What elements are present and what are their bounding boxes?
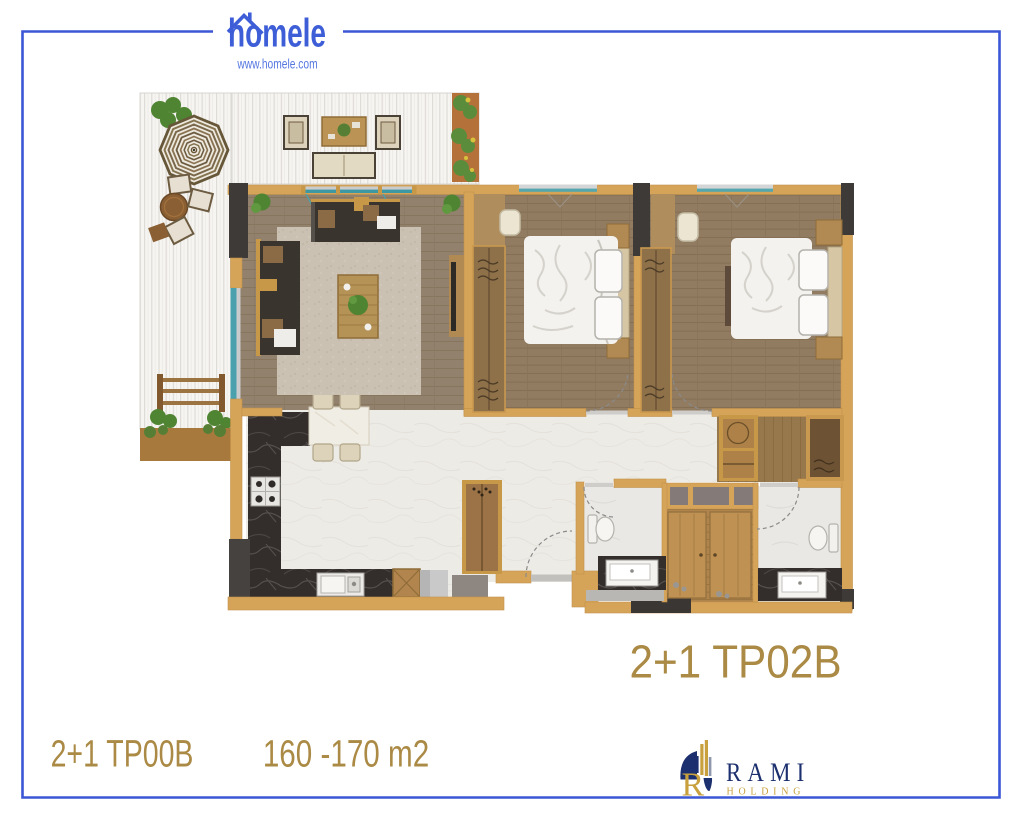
svg-text:homele: homele	[228, 12, 326, 56]
svg-text:2+1 TP00B: 2+1 TP00B	[51, 734, 194, 776]
svg-text:RAMI: RAMI	[726, 759, 810, 788]
svg-text:HOLDING: HOLDING	[727, 786, 806, 797]
svg-text:www.homele.com: www.homele.com	[237, 56, 318, 72]
svg-text:2+1 TP02B: 2+1 TP02B	[629, 637, 841, 688]
svg-text:R: R	[682, 767, 705, 804]
svg-text:160 -170 m2: 160 -170 m2	[263, 733, 429, 775]
